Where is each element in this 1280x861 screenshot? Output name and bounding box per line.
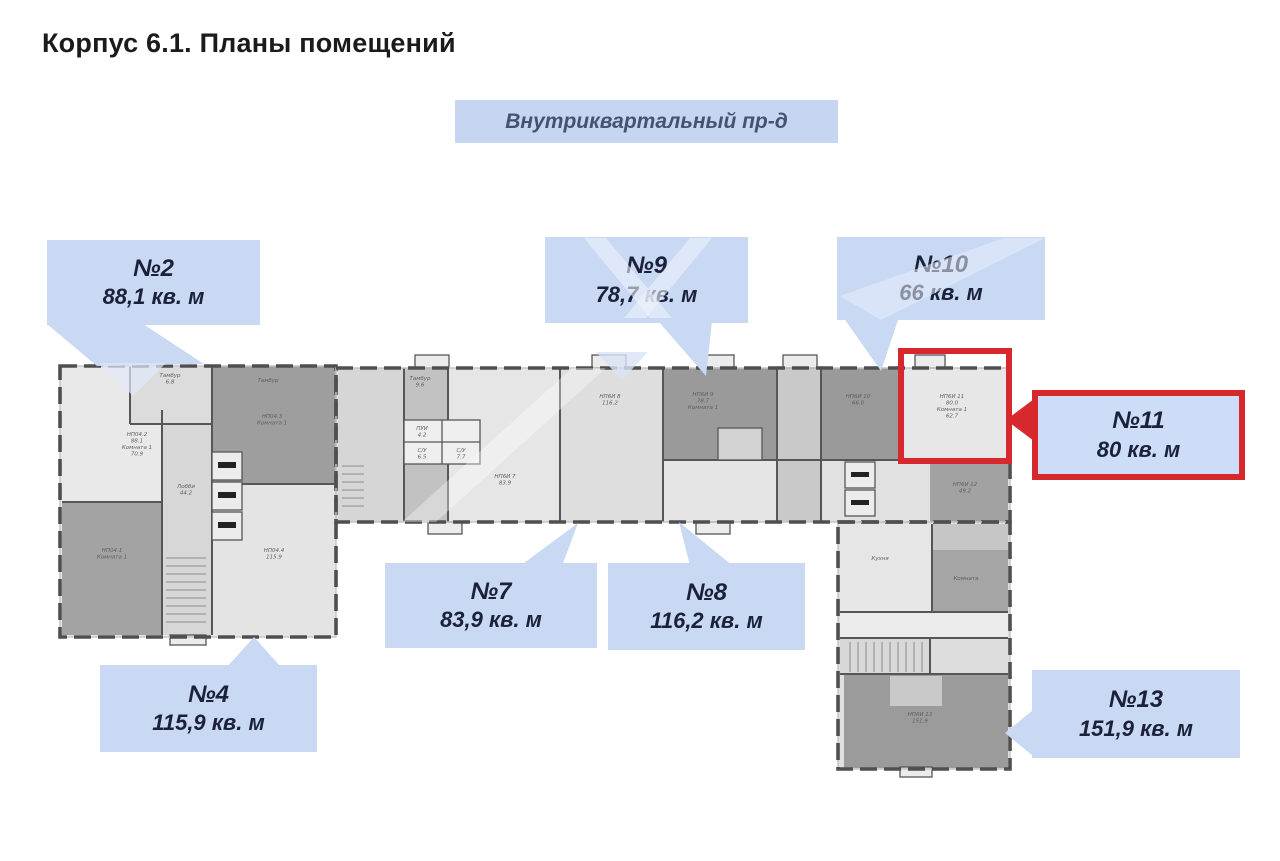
building-right-wing (838, 522, 1010, 769)
unit-callout-13: №13 151,9 кв. м (1032, 670, 1240, 758)
unit-area: 115,9 кв. м (152, 711, 264, 735)
svg-text:ПУИ4.2: ПУИ4.2 (416, 426, 428, 439)
floor-plan-page: Корпус 6.1. Планы помещений Внутрикварта… (0, 0, 1280, 861)
unit-area: 83,9 кв. м (440, 608, 542, 632)
unit-number: №11 (1112, 408, 1164, 434)
svg-text:С/У6.5: С/У6.5 (417, 448, 427, 461)
page-title: Корпус 6.1. Планы помещений (42, 28, 456, 59)
svg-text:НП6И 8116.2: НП6И 8116.2 (599, 394, 621, 407)
unit-area: 66 кв. м (899, 281, 983, 305)
unit-number: №10 (914, 252, 968, 278)
bathroom-unit9 (718, 428, 762, 460)
unit-area: 116,2 кв. м (650, 609, 762, 633)
unit-callout-7: №7 83,9 кв. м (385, 563, 597, 648)
unit-number: №8 (686, 580, 727, 606)
unit-area: 151,9 кв. м (1079, 717, 1193, 741)
svg-text:Тамбур: Тамбур (257, 378, 279, 384)
unit-number: №9 (626, 253, 667, 279)
unit-callout-9: №9 78,7 кв. м (545, 237, 748, 323)
unit-number: №13 (1109, 687, 1163, 713)
street-sign: Внутриквартальный пр-д (455, 100, 838, 143)
unit-area: 78,7 кв. м (596, 283, 698, 307)
svg-text:НП04.4115.9: НП04.4115.9 (264, 548, 285, 561)
unit-area: 80 кв. м (1097, 438, 1181, 462)
street-sign-label: Внутриквартальный пр-д (505, 110, 787, 134)
unit-callout-4: №4 115,9 кв. м (100, 665, 317, 752)
unit-number: №7 (471, 579, 512, 605)
svg-text:С/У7.7: С/У7.7 (456, 448, 466, 461)
unit-callout-2: №2 88,1 кв. м (47, 240, 260, 325)
unit-number: №2 (133, 256, 174, 282)
unit-callout-11-highlighted: №11 80 кв. м (1032, 390, 1245, 480)
svg-text:Комната: Комната (954, 576, 980, 582)
unit-number: №4 (188, 682, 229, 708)
building-left-block (60, 366, 336, 637)
svg-text:Кухня: Кухня (871, 556, 889, 562)
unit-callout-10: №10 66 кв. м (837, 237, 1045, 320)
building-strip (336, 368, 1010, 522)
unit-callout-8: №8 116,2 кв. м (608, 563, 805, 650)
elevator-shafts (212, 452, 242, 540)
unit-area: 88,1 кв. м (103, 285, 205, 309)
